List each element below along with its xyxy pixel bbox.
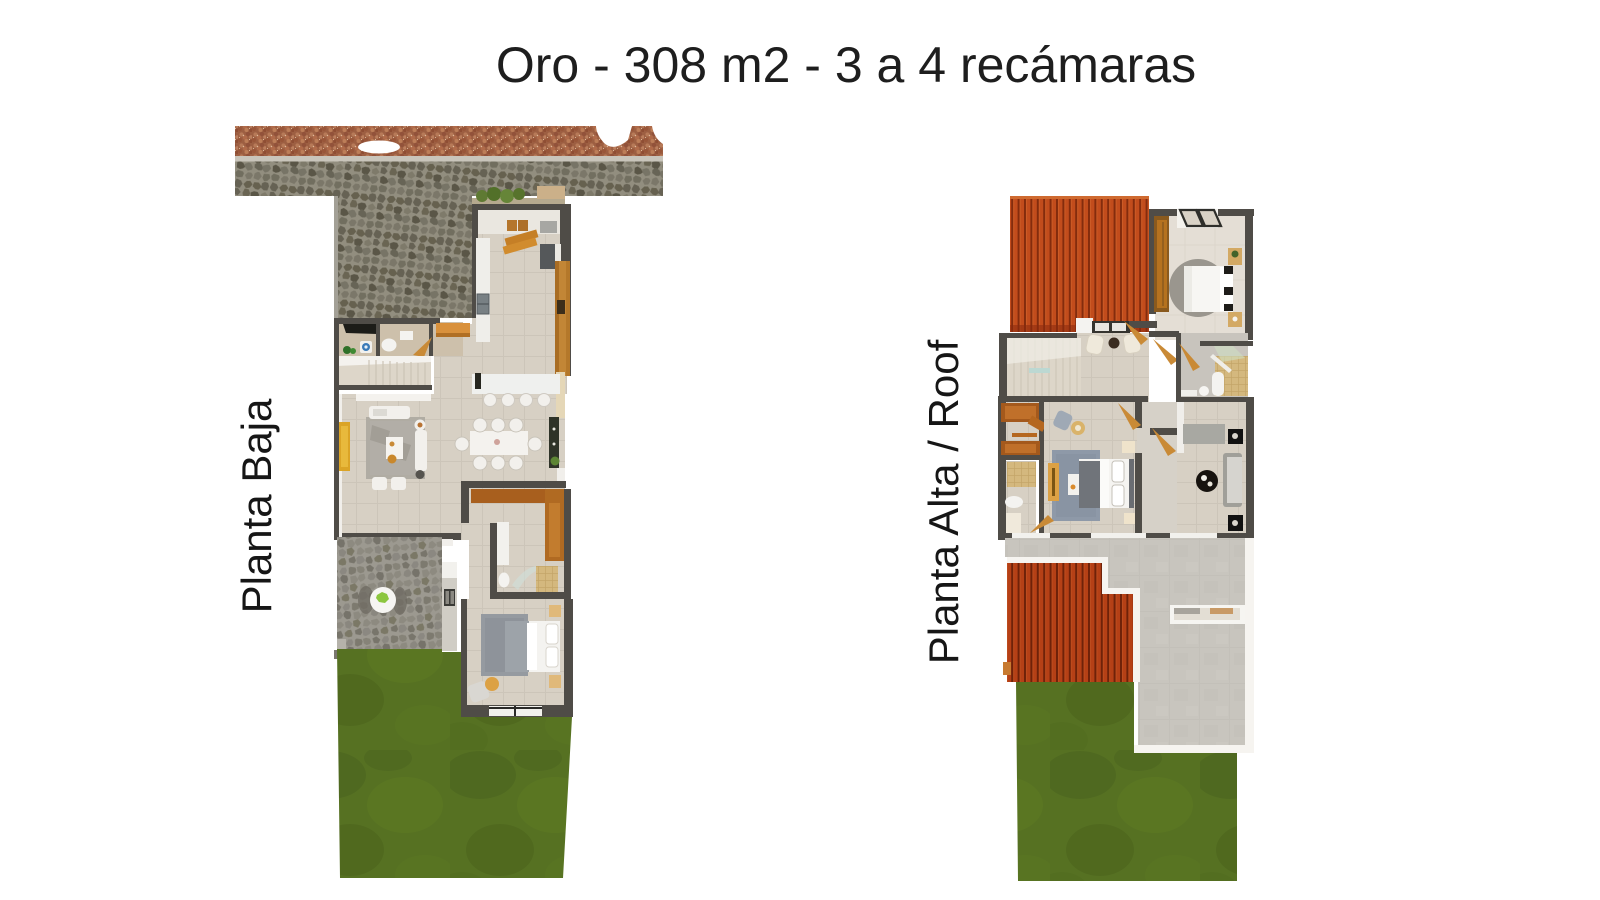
svg-text:Planta Alta / Roof: Planta Alta / Roof bbox=[920, 339, 967, 664]
svg-text:Oro - 308 m2 - 3 a 4 recámaras: Oro - 308 m2 - 3 a 4 recámaras bbox=[496, 37, 1196, 93]
svg-text:Planta Baja: Planta Baja bbox=[233, 398, 280, 613]
